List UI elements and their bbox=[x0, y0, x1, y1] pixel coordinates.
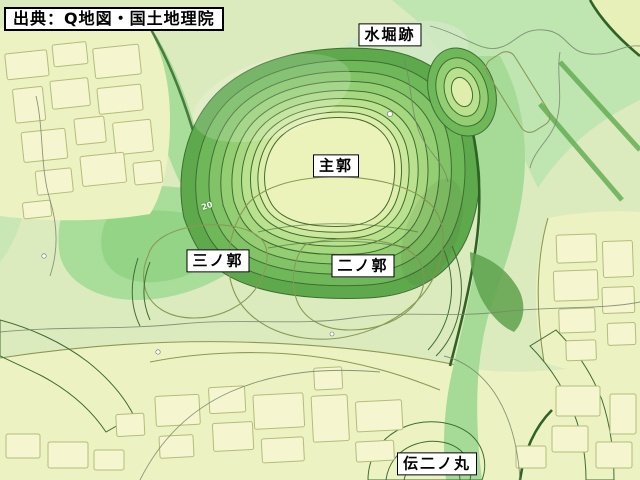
map-attribution: 出典：Q地図・国土地理院 bbox=[4, 7, 224, 31]
label-ninokaku: 二ノ郭 bbox=[331, 254, 394, 277]
label-shukaku: 主郭 bbox=[313, 154, 359, 177]
label-mizubori-ato: 水堀跡 bbox=[358, 23, 421, 46]
label-sannokaku: 三ノ郭 bbox=[186, 249, 249, 272]
label-den-ninomaru: 伝二ノ丸 bbox=[397, 452, 477, 475]
map-screenshot: 20 水堀跡 主郭 三ノ郭 二ノ郭 伝二ノ丸 出典：Q地図・国土地理院 bbox=[0, 0, 640, 480]
map-canvas[interactable] bbox=[0, 0, 640, 480]
